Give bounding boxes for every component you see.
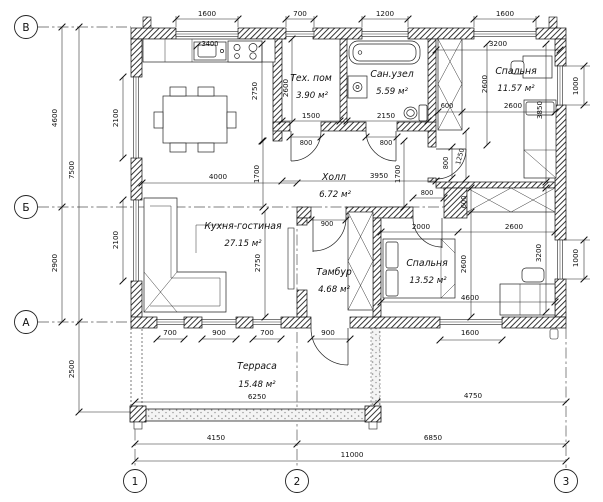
dim-left-win1-2100: 2100 xyxy=(111,108,120,127)
labels: 1600 700 1200 1600 3400 3200 2600 2750 2… xyxy=(50,9,580,459)
washing-machine xyxy=(348,76,367,98)
dim-kitchen-2750a: 2750 xyxy=(250,81,259,100)
dim-bottom-900: 900 xyxy=(212,328,226,337)
dim-bottom-door-900: 900 xyxy=(321,328,335,337)
dim-b1-2600v: 2600 xyxy=(480,74,489,93)
dim-right-1000a: 1000 xyxy=(571,76,580,95)
dim-left-win2-2100: 2100 xyxy=(111,230,120,249)
dim-bottom-6850: 6850 xyxy=(424,433,443,442)
dim-b2-ward-600: 600 xyxy=(460,196,468,209)
room-area-hall: 6.72 м² xyxy=(319,190,351,200)
axis-row-A-label: А xyxy=(22,317,30,329)
dim-b2-2600: 2600 xyxy=(505,222,524,231)
axis-col-3-label: 3 xyxy=(563,476,570,488)
kitchen-sliding-door xyxy=(288,228,294,289)
dim-bath-2150: 2150 xyxy=(377,111,396,120)
room-name-bath: Сан.узел xyxy=(370,69,413,80)
dim-bottom-4150: 4150 xyxy=(207,433,226,442)
axis-col-2-label: 2 xyxy=(294,476,301,488)
dim-right-1000b: 1000 xyxy=(571,248,580,267)
dim-b2-3200: 3200 xyxy=(534,243,543,262)
dim-bottom-4750: 4750 xyxy=(464,391,483,400)
corner-sofa xyxy=(144,198,226,312)
room-area-bedroom1: 11.57 м² xyxy=(497,84,535,94)
dim-tech-2600: 2600 xyxy=(281,78,290,97)
room-name-kitchen: Кухня-гостиная xyxy=(204,221,282,232)
dim-tech-door-800: 800 xyxy=(300,139,313,147)
dim-b1-2600h: 2600 xyxy=(504,101,523,110)
room-name-tech: Тех. пом xyxy=(290,73,332,84)
axis-row-B2-label: Б xyxy=(22,202,29,214)
axis-row-B-label: В xyxy=(22,22,29,34)
room-area-tech: 3.90 м² xyxy=(296,91,328,101)
dim-b1-3850: 3850 xyxy=(535,100,544,119)
dim-b1-1250: 1250 xyxy=(454,147,466,165)
dim-b1-3200: 3200 xyxy=(489,39,508,48)
dim-b2-2600v: 2600 xyxy=(459,254,468,273)
dim-left-4600: 4600 xyxy=(50,108,59,127)
dim-kitchen-2750b: 2750 xyxy=(253,253,262,272)
room-name-bedroom1: Спальня xyxy=(495,66,537,77)
floor-plan-canvas: 1600 700 1200 1600 3400 3200 2600 2750 2… xyxy=(0,0,603,502)
room-name-tambour: Тамбур xyxy=(316,267,352,278)
dim-hall-3950: 3950 xyxy=(370,171,389,180)
room-area-kitchen: 27.15 м² xyxy=(224,239,262,249)
room-area-terrace: 15.48 м² xyxy=(238,380,276,390)
floor-plan-page: 1600 700 1200 1600 3400 3200 2600 2750 2… xyxy=(0,0,603,502)
dim-top-1200: 1200 xyxy=(376,9,395,18)
dim-hall-1700a: 1700 xyxy=(252,164,261,183)
dim-tambour-door-900: 900 xyxy=(321,220,334,228)
dim-left-2900: 2900 xyxy=(50,253,59,272)
toilet xyxy=(404,105,427,121)
dim-bath-door-800: 800 xyxy=(380,139,393,147)
dim-kitchen-4000: 4000 xyxy=(209,172,228,181)
room-name-terrace: Терраса xyxy=(237,361,277,372)
dim-b1-ward-600: 600 xyxy=(441,102,454,110)
dim-b2-2000: 2000 xyxy=(412,222,431,231)
dim-top-700: 700 xyxy=(293,9,307,18)
dim-tech-1500: 1500 xyxy=(302,111,321,120)
dim-terrace-6250: 6250 xyxy=(248,392,267,401)
room-name-hall: Холл xyxy=(321,172,346,183)
dim-top-1600b: 1600 xyxy=(496,9,515,18)
dim-b2-4600: 4600 xyxy=(461,293,480,302)
dim-counter-3400: 3400 xyxy=(202,40,219,48)
bathtub xyxy=(349,41,420,64)
dim-left-2500: 2500 xyxy=(67,359,76,378)
dim-top-1600a: 1600 xyxy=(198,9,217,18)
dining-table xyxy=(154,87,236,152)
dim-b2-door-800: 800 xyxy=(421,189,434,197)
room-area-bath: 5.59 м² xyxy=(376,87,408,97)
room-area-tambour: 4.68 м² xyxy=(318,285,350,295)
dim-left-7500: 7500 xyxy=(67,160,76,179)
dim-bottom-700b: 700 xyxy=(260,328,274,337)
dim-bottom-1600: 1600 xyxy=(461,328,480,337)
axis-col-1-label: 1 xyxy=(132,476,139,488)
room-name-bedroom2: Спальня xyxy=(406,258,448,269)
dim-hall-1700b: 1700 xyxy=(393,164,402,183)
room-area-bedroom2: 13.52 м² xyxy=(409,276,447,286)
terrace-structure xyxy=(130,328,381,429)
dim-bottom-11000: 11000 xyxy=(341,450,364,459)
dim-b1-door-800: 800 xyxy=(442,157,450,170)
dim-bottom-700a: 700 xyxy=(163,328,177,337)
